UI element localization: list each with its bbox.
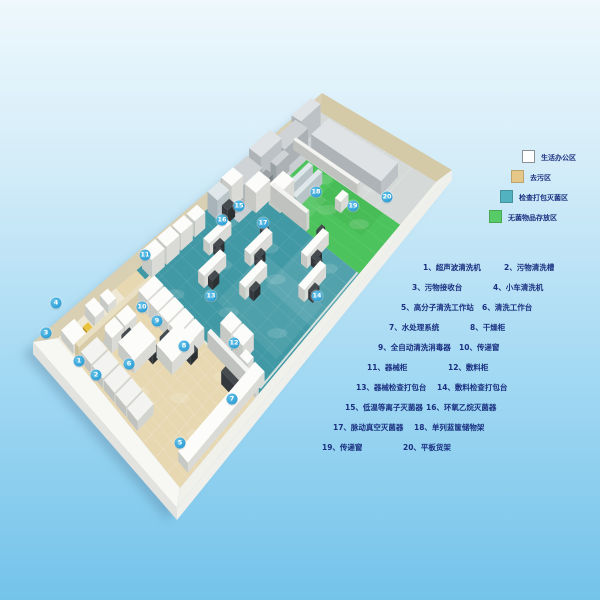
plan-marker-14: 14 bbox=[312, 291, 323, 302]
plan-marker-20: 20 bbox=[382, 192, 393, 203]
equipment-item: 8、干燥柜 bbox=[470, 322, 505, 333]
equipment-item: 1、超声波清洗机 bbox=[423, 262, 481, 273]
legend-label: 检查打包灭菌区 bbox=[519, 193, 568, 203]
equipment-item: 11、器械柜 bbox=[367, 362, 407, 373]
plan-marker-6: 6 bbox=[124, 359, 135, 370]
plan-marker-16: 16 bbox=[217, 215, 228, 226]
floor-light-spot bbox=[266, 274, 286, 284]
legend-swatch-icon bbox=[522, 150, 535, 163]
floorplan-illustration bbox=[0, 0, 600, 600]
legend-label: 生活办公区 bbox=[541, 153, 576, 163]
plan-marker-11: 11 bbox=[140, 250, 151, 261]
floor-light-spot bbox=[349, 219, 369, 229]
legend-swatch-icon bbox=[489, 210, 502, 223]
plan-marker-5: 5 bbox=[175, 438, 186, 449]
equipment-item: 14、敷料检查打包台 bbox=[437, 382, 507, 393]
plan-marker-18: 18 bbox=[311, 187, 322, 198]
equipment-item: 12、敷料柜 bbox=[448, 362, 488, 373]
plan-marker-17: 17 bbox=[258, 218, 269, 229]
equipment-item: 17、脉动真空灭菌器 bbox=[333, 422, 403, 433]
floor-light-spot bbox=[170, 393, 190, 403]
plan-marker-8: 8 bbox=[179, 341, 190, 352]
equipment-item: 4、小车清洗机 bbox=[493, 282, 543, 293]
floor-light-spot bbox=[317, 205, 337, 215]
legend-swatch-icon bbox=[511, 170, 524, 183]
equipment-item: 19、传递窗 bbox=[322, 442, 362, 453]
equipment-item: 9、全自动清洗消毒器 bbox=[378, 342, 451, 353]
plan-marker-2: 2 bbox=[91, 370, 102, 381]
plan-marker-12: 12 bbox=[229, 338, 240, 349]
legend-label: 去污区 bbox=[530, 173, 551, 183]
equipment-item: 18、单列蓝筐储物架 bbox=[414, 422, 484, 433]
equipment-item: 2、污物清洗槽 bbox=[504, 262, 554, 273]
floor-light-spot bbox=[267, 328, 287, 338]
furniture-face bbox=[306, 210, 309, 231]
plan-marker-1: 1 bbox=[74, 356, 85, 367]
equipment-item: 20、平板货架 bbox=[403, 442, 451, 453]
equipment-item: 5、高分子清洗工作站 bbox=[401, 302, 474, 313]
equipment-item: 6、清洗工作台 bbox=[482, 302, 532, 313]
plan-marker-15: 15 bbox=[234, 201, 245, 212]
plan-marker-10: 10 bbox=[137, 302, 148, 313]
equipment-item: 3、污物接收台 bbox=[412, 282, 462, 293]
equipment-item: 13、器械检查打包台 bbox=[356, 382, 426, 393]
equipment-item: 16、环氧乙烷灭菌器 bbox=[426, 402, 496, 413]
equipment-item: 15、低温等离子灭菌器 bbox=[345, 402, 423, 413]
equipment-item: 7、水处理系统 bbox=[389, 322, 439, 333]
plan-marker-19: 19 bbox=[348, 201, 359, 212]
plan-marker-4: 4 bbox=[51, 298, 62, 309]
legend-swatch-icon bbox=[500, 190, 513, 203]
infographic-canvas: 1234567891011121314151617181920 生活办公区去污区… bbox=[0, 0, 600, 600]
plan-marker-7: 7 bbox=[227, 394, 238, 405]
plan-marker-13: 13 bbox=[206, 291, 217, 302]
legend-label: 无菌物品存放区 bbox=[508, 213, 557, 223]
plan-marker-3: 3 bbox=[41, 328, 52, 339]
equipment-item: 10、传递窗 bbox=[459, 342, 499, 353]
plan-marker-9: 9 bbox=[152, 316, 163, 327]
